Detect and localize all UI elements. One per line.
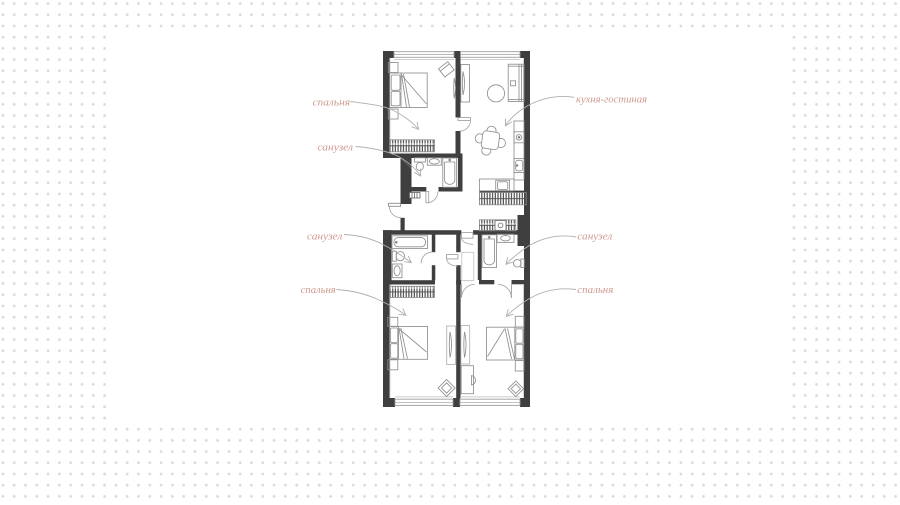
svg-text:спальня: спальня (301, 285, 336, 296)
svg-text:спальня: спальня (577, 285, 613, 296)
svg-text:кухня-гостиная: кухня-гостиная (576, 94, 647, 105)
svg-text:санузел: санузел (318, 143, 354, 154)
svg-text:санузел: санузел (307, 232, 343, 243)
svg-text:санузел: санузел (577, 232, 612, 243)
svg-text:спальня: спальня (313, 97, 351, 108)
